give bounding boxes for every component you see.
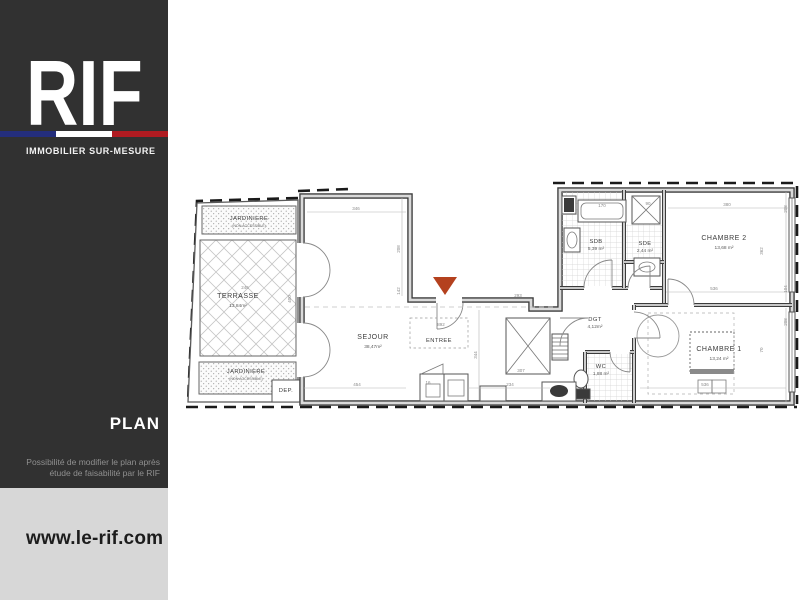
dimension-label: 234	[506, 382, 514, 387]
dimension-label: 892	[437, 322, 445, 327]
washing-machine	[542, 382, 576, 401]
sde-vanity	[634, 258, 660, 276]
room-area-chambre1: 13,24 m²	[710, 356, 729, 362]
dimension-label: 536	[710, 286, 718, 291]
room-label-entree: ENTREE	[426, 338, 452, 344]
dimension-label: 344	[473, 351, 478, 359]
room-label-wc: WC	[596, 364, 606, 370]
room-area-dgt: 4,12m²	[588, 324, 603, 330]
room-area-jardiniere-top: (NON ACCESSIBLE)	[232, 224, 266, 228]
dimension-label: 380	[723, 202, 731, 207]
room-label-dgt: DGT	[588, 317, 601, 323]
room-label-sejour: SEJOUR	[357, 334, 388, 341]
room-label-terrasse: TERRASSE	[217, 293, 259, 300]
dimension-label: 362	[759, 247, 764, 255]
room-label-sdb: SDB	[589, 239, 602, 245]
dimension-label: 246	[241, 285, 249, 290]
dimension-label: 142	[396, 287, 401, 295]
dimension-label: 400	[287, 295, 292, 303]
dimension-label: 16	[425, 380, 431, 385]
dimension-label: 536	[701, 382, 709, 387]
dimension-label: 208	[396, 245, 401, 253]
floor-plan: 346 380 536 536 454 234 307 16 892 293 2…	[0, 0, 800, 600]
ladder	[552, 334, 568, 360]
wc-floor-tiles	[587, 354, 632, 401]
dimension-label: 170	[598, 203, 606, 208]
room-area-sde: 2,44 m²	[637, 248, 654, 254]
room-area-sdb: 5,39 m²	[588, 246, 605, 252]
window-chambre2	[789, 198, 795, 292]
room-area-wc: 1,88 m²	[593, 371, 610, 377]
room-label-chambre2: CHAMBRE 2	[701, 235, 746, 242]
room-area-chambre2: 13,68 m²	[715, 245, 734, 251]
dimension-label: 90	[645, 201, 651, 206]
dimension-label: 346	[352, 206, 360, 211]
page: RIF IMMOBILIER SUR-MESURE PLAN Possibili…	[0, 0, 800, 600]
room-area-jardiniere-bottom: (NON ACCESSIBLE)	[229, 377, 263, 381]
dimension-label: 307	[517, 368, 525, 373]
room-label-chambre1: CHAMBRE 1	[696, 346, 741, 353]
dimension-label: 208	[783, 205, 788, 213]
dimension-label: 293	[514, 293, 522, 298]
window-chambre1	[789, 312, 795, 392]
entrance-arrow-icon	[433, 277, 457, 295]
room-area-sejour: 38,47m²	[364, 344, 382, 350]
room-label-dep: DEP.	[279, 388, 293, 394]
dimension-label: 70	[759, 347, 764, 353]
dimension-label: 454	[353, 382, 361, 387]
room-label-jardiniere-top: JARDINIERE	[230, 216, 268, 222]
dimension-label: 208	[783, 318, 788, 326]
room-area-terrasse: 13,84m²	[229, 303, 247, 309]
dimension-label: 104	[783, 285, 788, 293]
room-label-jardiniere-bottom: JARDINIERE	[227, 369, 265, 375]
room-label-sde: SDE	[638, 241, 651, 247]
